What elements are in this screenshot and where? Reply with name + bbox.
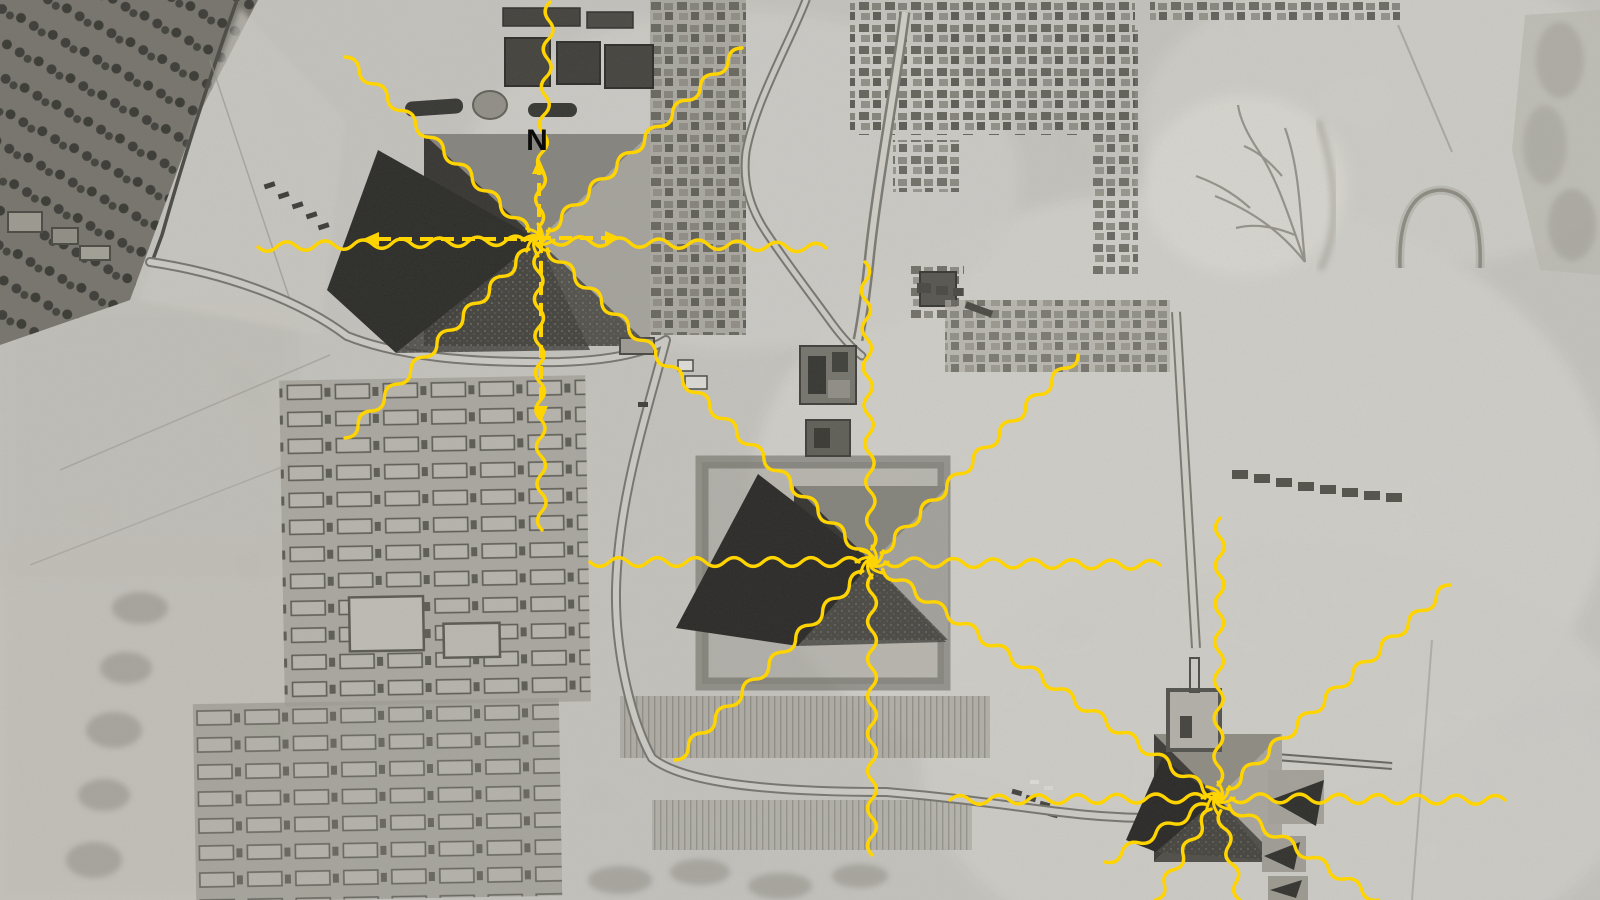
giza-aerial-screenshot: N xyxy=(0,0,1600,900)
film-grain xyxy=(0,0,1600,900)
giza-aerial-photo: N xyxy=(0,0,1600,900)
north-label: N xyxy=(526,124,548,157)
